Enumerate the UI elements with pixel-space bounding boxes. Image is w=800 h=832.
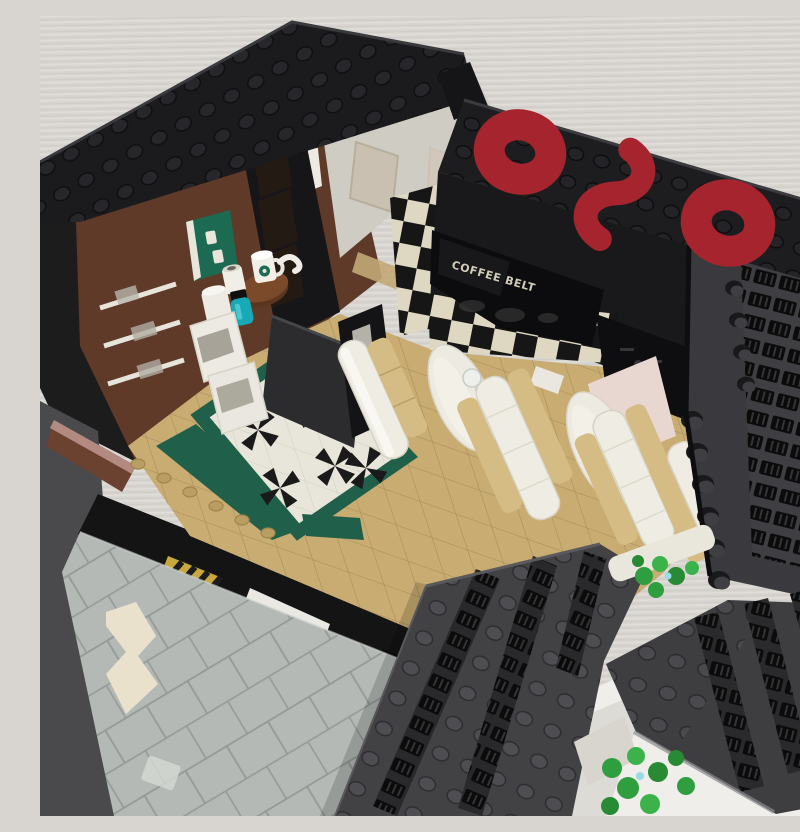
lego-coffee-shop-photo: COFFEE BELT <box>40 16 800 816</box>
green-edge-tile <box>302 514 364 540</box>
